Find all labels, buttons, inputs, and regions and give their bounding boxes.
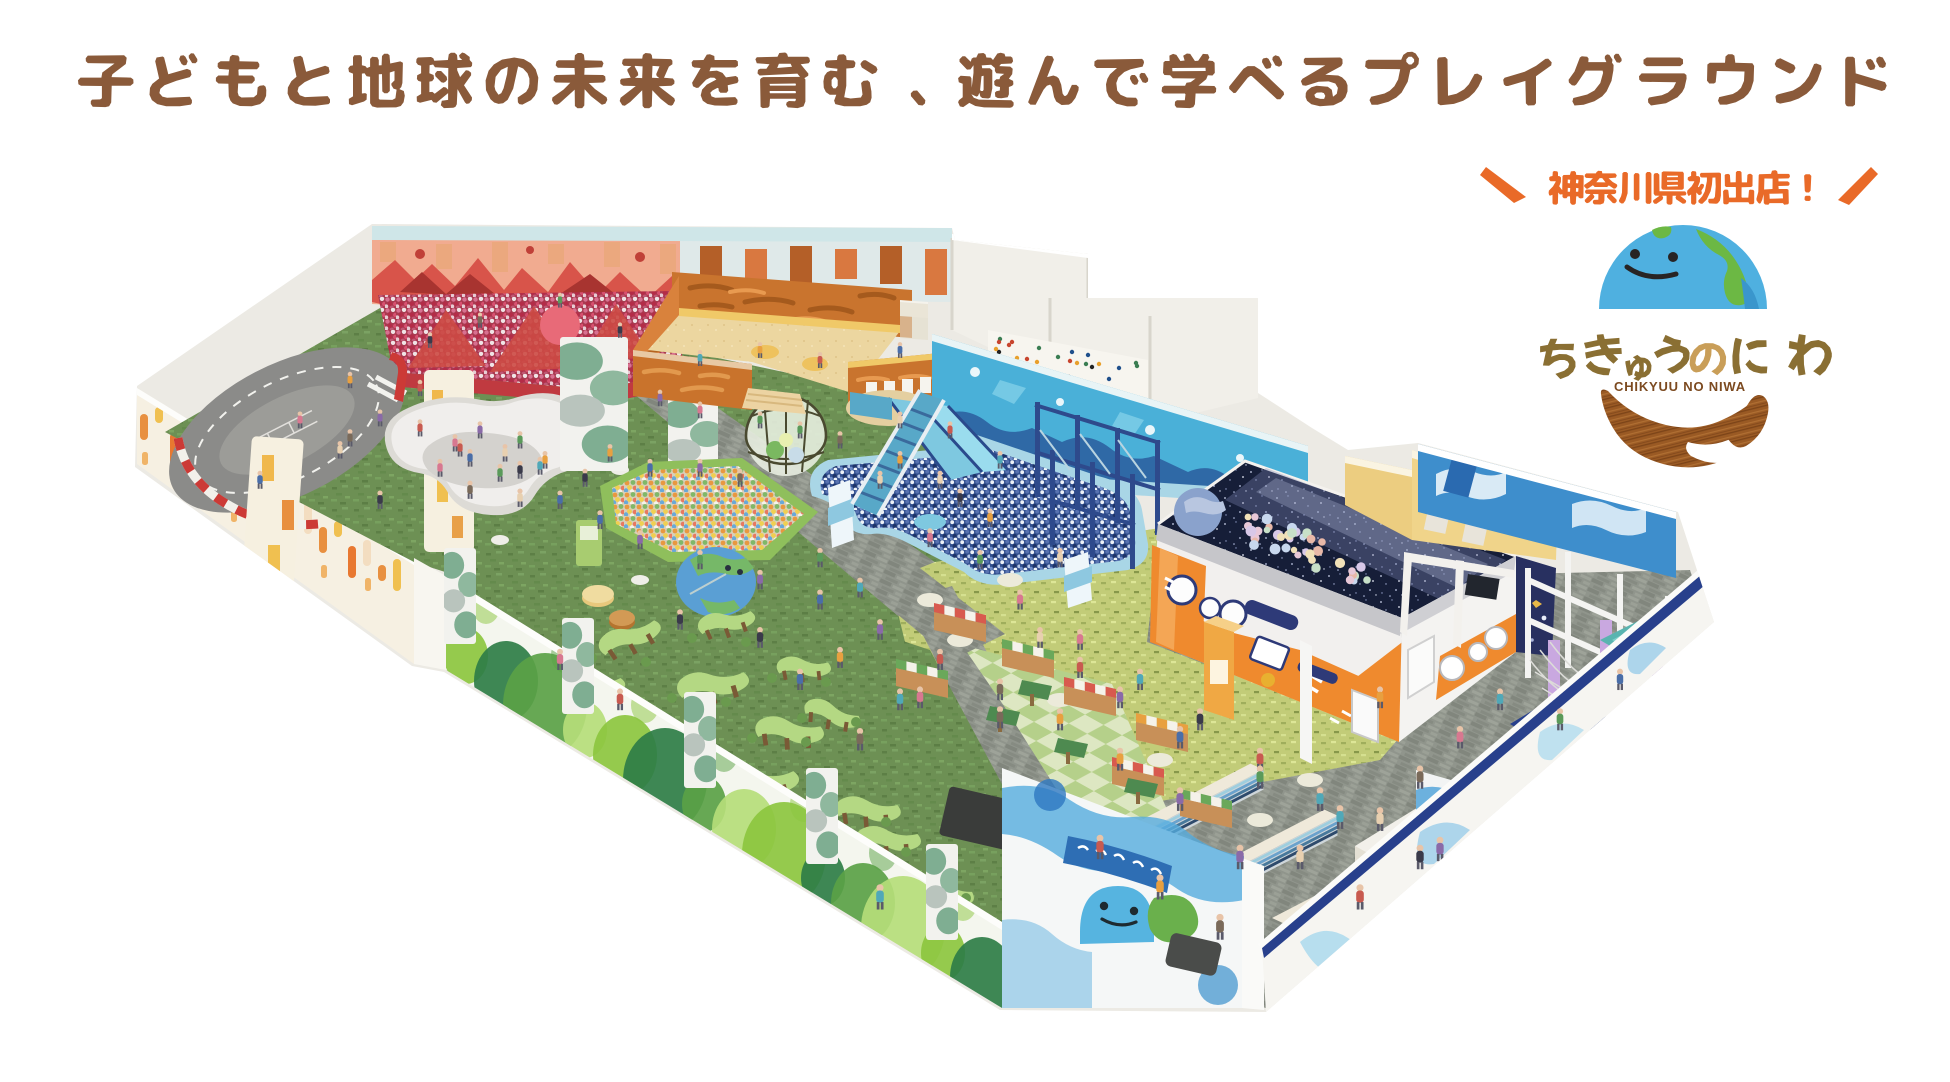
svg-text:CHIKYUU NO NIWA: CHIKYUU NO NIWA [1614,379,1746,394]
